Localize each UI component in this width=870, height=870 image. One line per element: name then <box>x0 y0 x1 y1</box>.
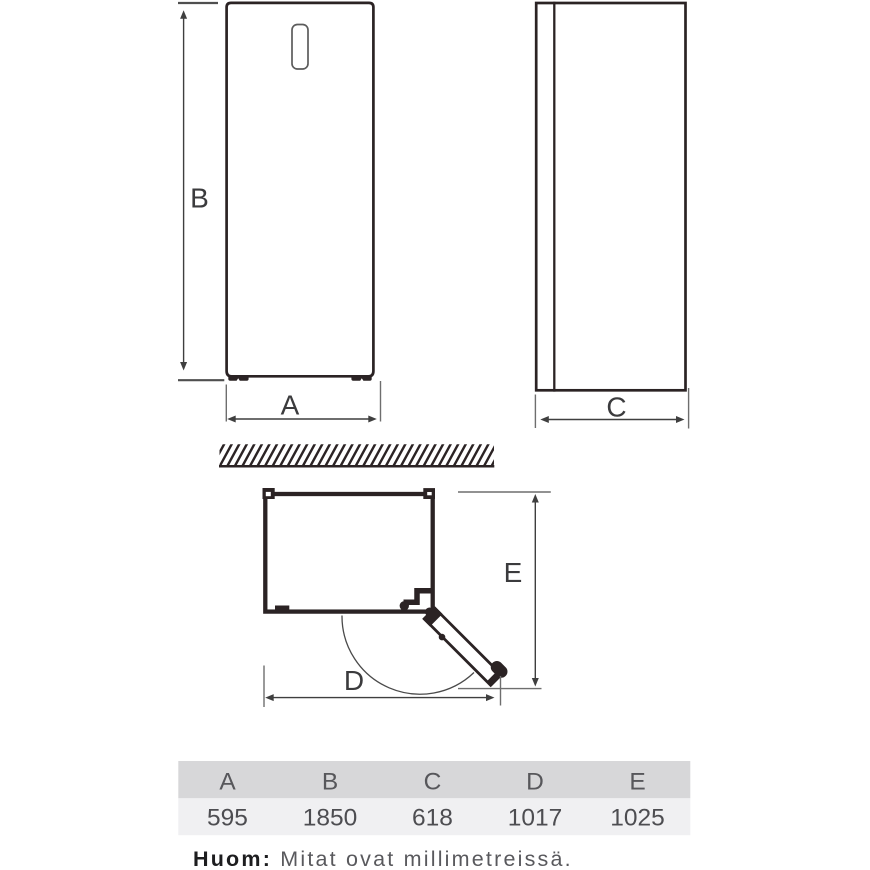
svg-text:595: 595 <box>207 805 248 832</box>
svg-text:E: E <box>629 769 645 796</box>
svg-text:A: A <box>219 769 236 796</box>
svg-text:B: B <box>190 183 209 214</box>
svg-text:1017: 1017 <box>508 805 563 832</box>
svg-text:A: A <box>281 390 300 421</box>
svg-text:C: C <box>424 769 442 796</box>
svg-text:1850: 1850 <box>303 805 358 832</box>
svg-text:D: D <box>526 769 544 796</box>
svg-text:D: D <box>344 665 364 696</box>
svg-text:C: C <box>606 392 626 423</box>
svg-text:E: E <box>504 557 523 588</box>
svg-text:618: 618 <box>412 805 453 832</box>
svg-text:1025: 1025 <box>610 805 665 832</box>
svg-text:Huom: Mitat ovat millimetreiss: Huom: Mitat ovat millimetreissä. <box>193 847 573 870</box>
svg-text:B: B <box>322 769 338 796</box>
